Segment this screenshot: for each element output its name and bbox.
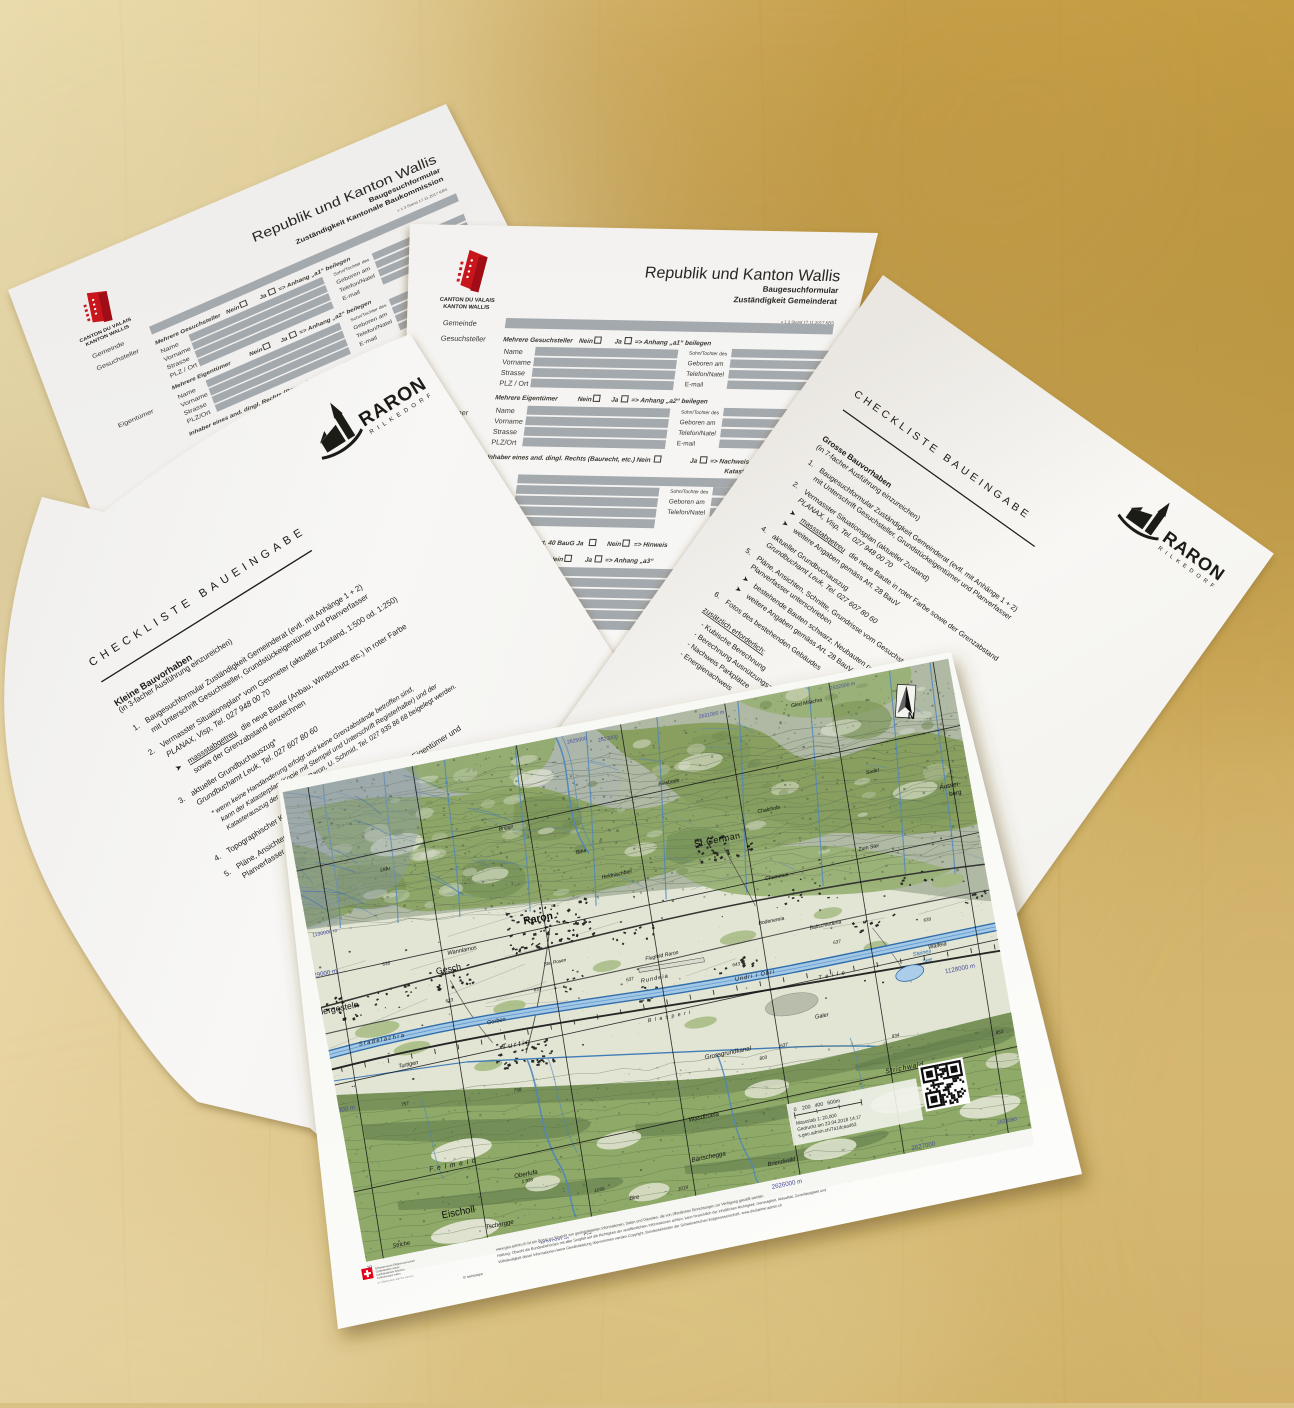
svg-text:N: N — [907, 710, 915, 722]
svg-text:CANTON DU VALAIS: CANTON DU VALAIS — [439, 297, 495, 304]
svg-text:KANTON WALLIS: KANTON WALLIS — [443, 304, 490, 311]
svg-text:Baugesuchformular: Baugesuchformular — [762, 285, 839, 295]
